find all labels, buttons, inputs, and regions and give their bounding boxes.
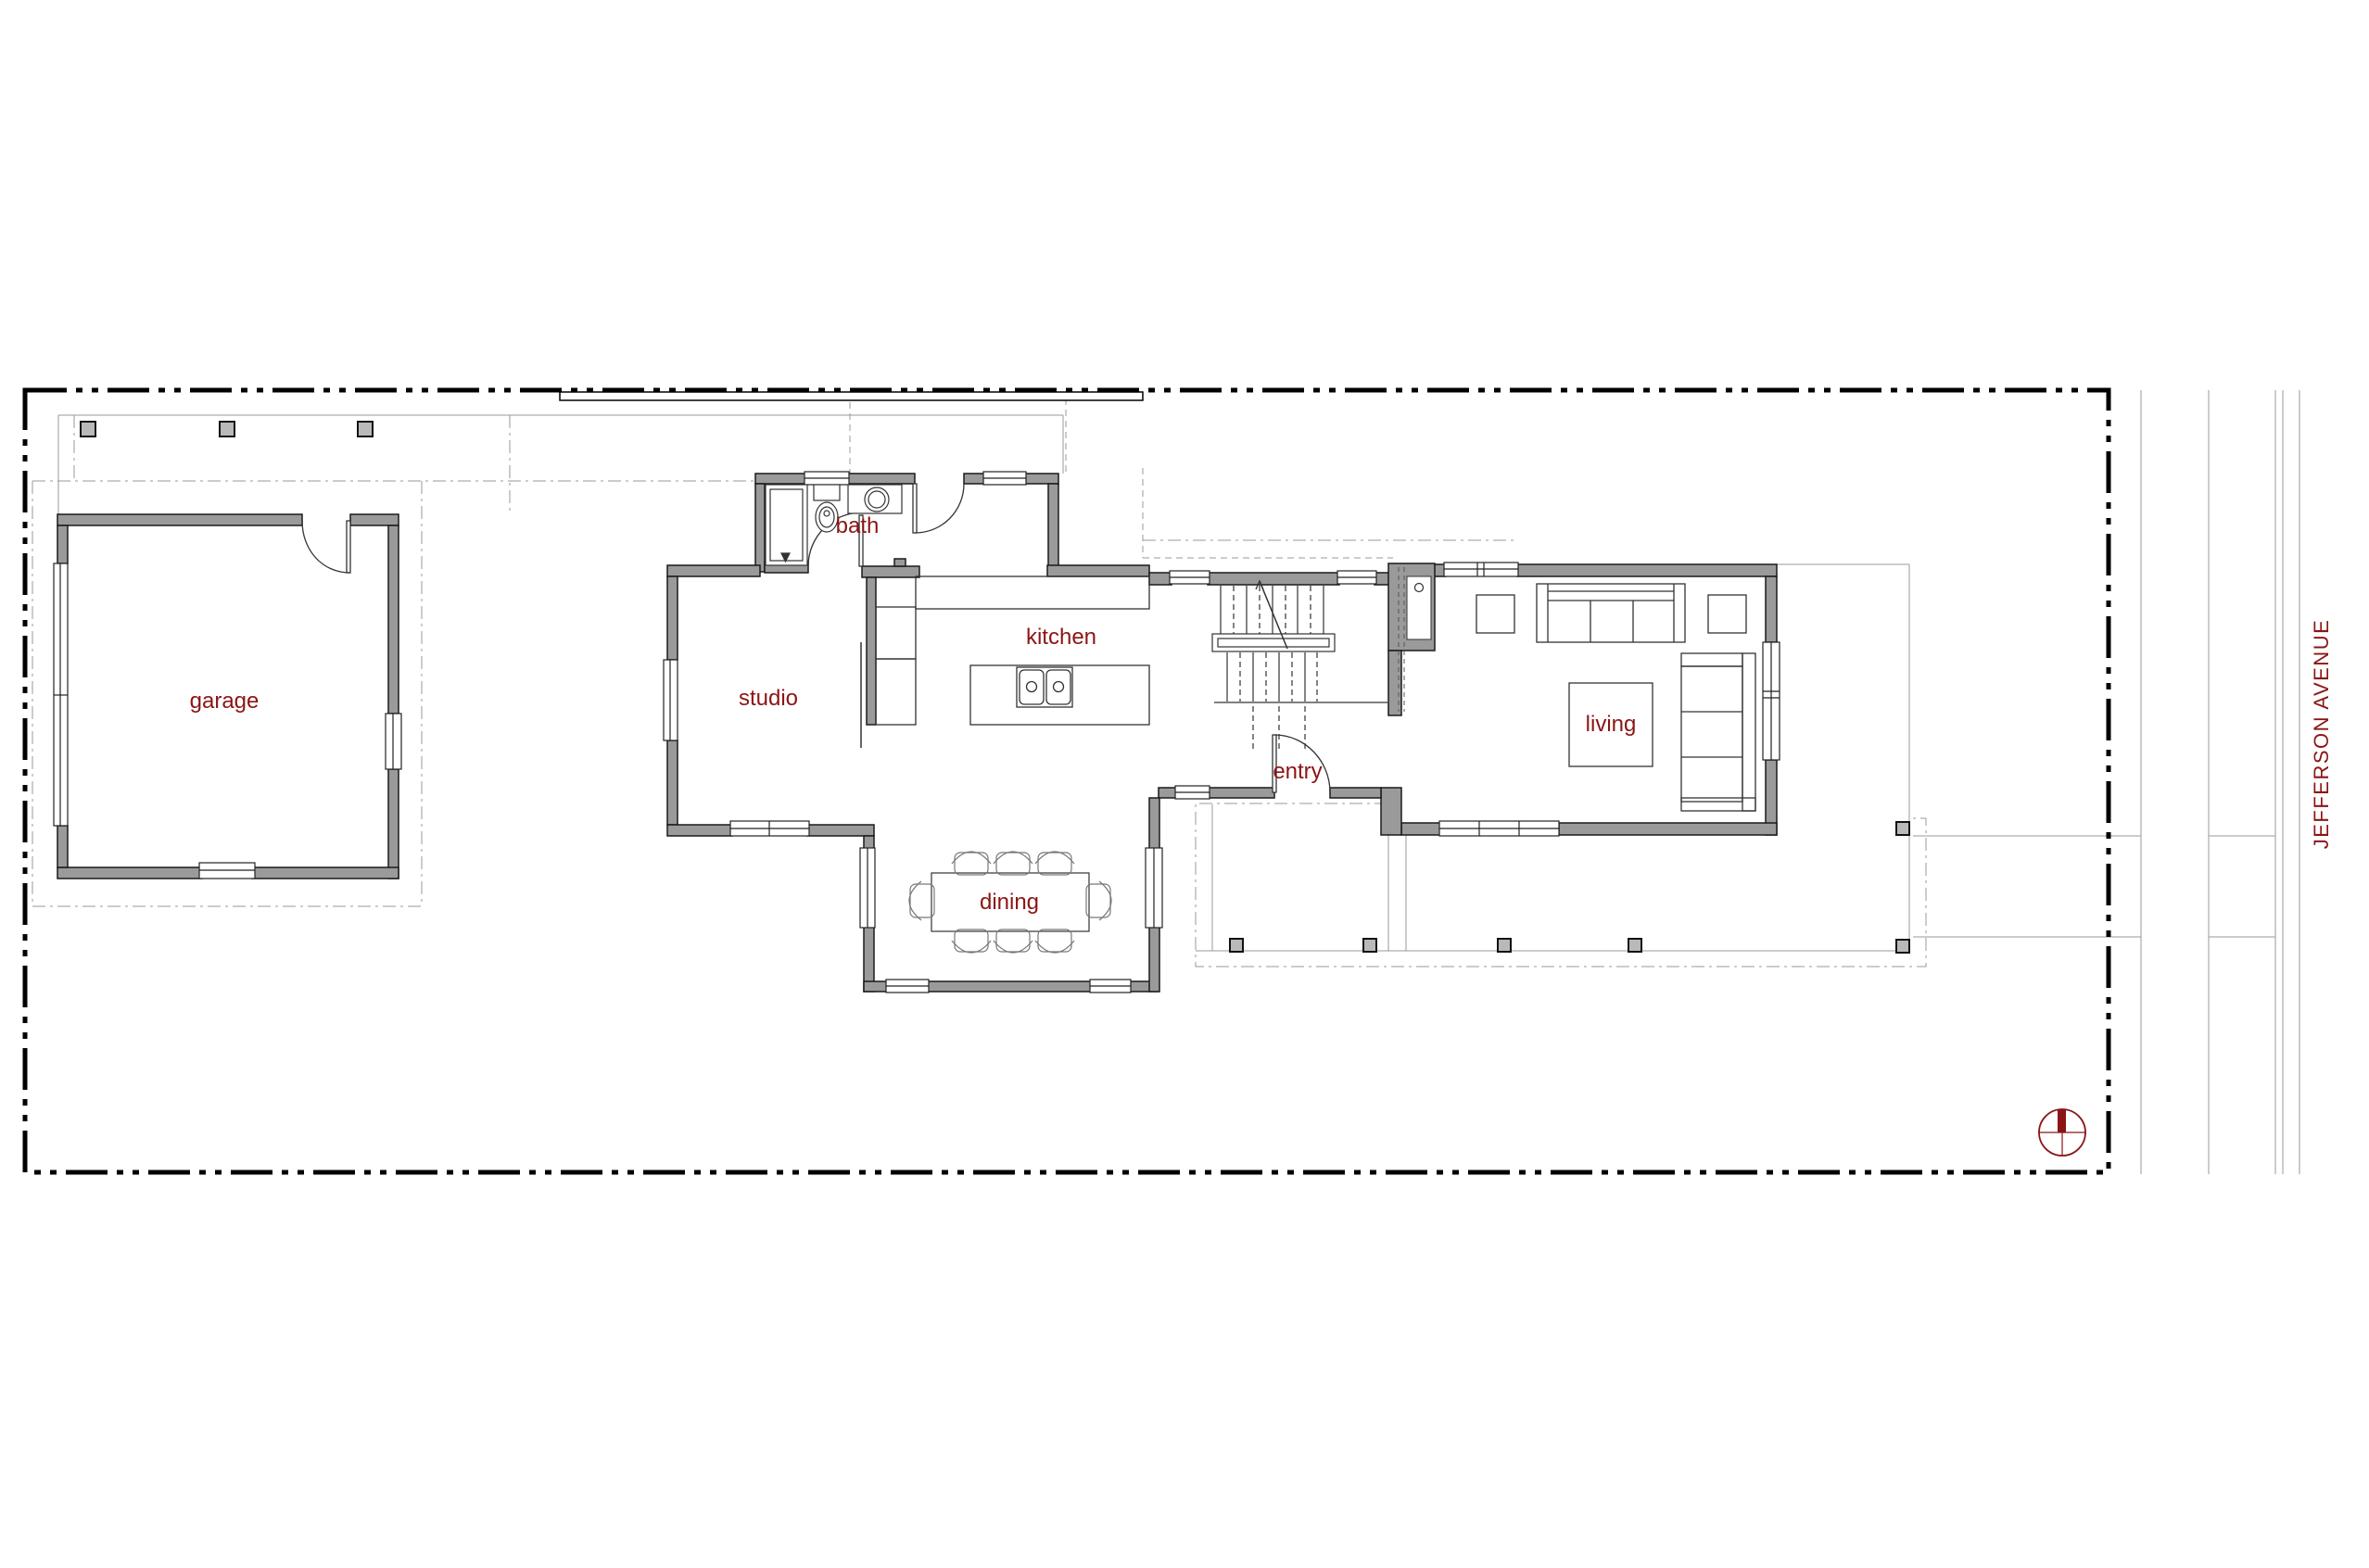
dining-chairs-top: [952, 852, 1074, 875]
fence-line: [560, 392, 1143, 400]
room-label-entry: entry: [1273, 761, 1322, 783]
windows: [54, 472, 1780, 993]
bath-sink-icon: [848, 485, 902, 513]
kitchen-island: [970, 665, 1149, 725]
kitchen-cabinet: [876, 659, 916, 725]
room-label-bath: bath: [836, 515, 880, 537]
north-arrow-icon: [2038, 1109, 2086, 1156]
property-boundary-line: [25, 390, 2109, 1172]
street-name-label: JEFFERSON AVENUE: [2312, 619, 2332, 850]
floor-plan-drawing: [0, 0, 2369, 1568]
dining-chairs-bottom: [952, 929, 1074, 953]
room-label-living: living: [1586, 714, 1637, 736]
walkway-lines: [1913, 836, 2275, 937]
room-label-kitchen: kitchen: [1026, 626, 1096, 649]
water-heater-symbol: [1415, 584, 1424, 592]
kitchen-sink-icon: [1017, 667, 1072, 707]
kitchen-counter: [916, 576, 1149, 609]
walls: [57, 474, 1777, 992]
living-furniture: [1476, 584, 1755, 811]
carport-posts: [81, 422, 373, 436]
sectional-sofa: [1681, 653, 1755, 811]
room-label-studio: studio: [739, 688, 798, 710]
bath-fixtures: [766, 485, 902, 565]
side-table-left: [1476, 595, 1514, 633]
side-table-right: [1708, 595, 1746, 633]
porch-posts: [1230, 822, 1909, 953]
doors: [302, 484, 1330, 792]
shower-icon: [766, 485, 807, 565]
refrigerator: [876, 607, 916, 659]
floor-plan-canvas: garage studio bath kitchen entry living …: [0, 0, 2369, 1568]
room-label-garage: garage: [190, 690, 260, 713]
sofa: [1537, 584, 1685, 642]
kitchen-fixtures: [861, 576, 1149, 748]
stairs: [1212, 581, 1387, 749]
room-label-dining: dining: [980, 891, 1039, 914]
